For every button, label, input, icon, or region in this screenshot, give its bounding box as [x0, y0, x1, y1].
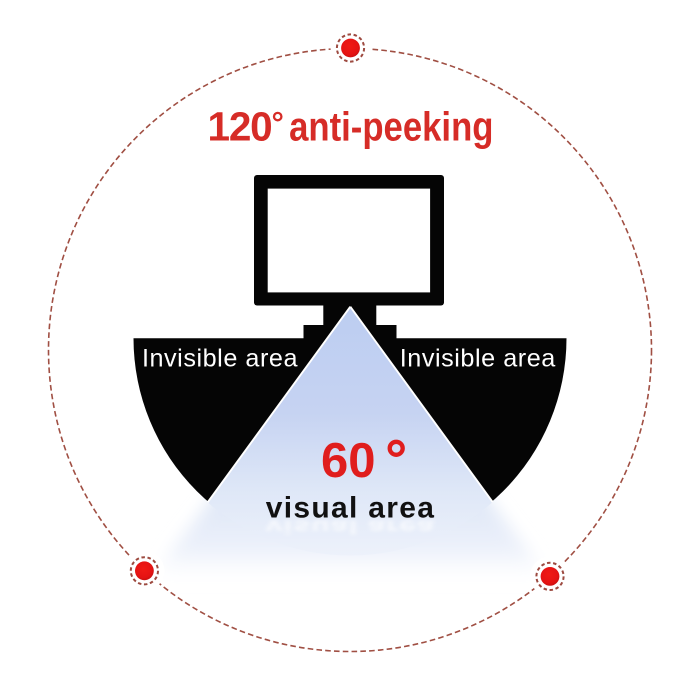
svg-text:anti-peeking: anti-peeking [289, 104, 493, 149]
svg-text:visual area: visual area [266, 516, 435, 538]
svg-text:120: 120 [208, 104, 272, 150]
svg-text:Invisible area: Invisible area [400, 345, 557, 373]
svg-text:Invisible area: Invisible area [142, 345, 299, 373]
svg-text:60: 60 [321, 434, 376, 488]
